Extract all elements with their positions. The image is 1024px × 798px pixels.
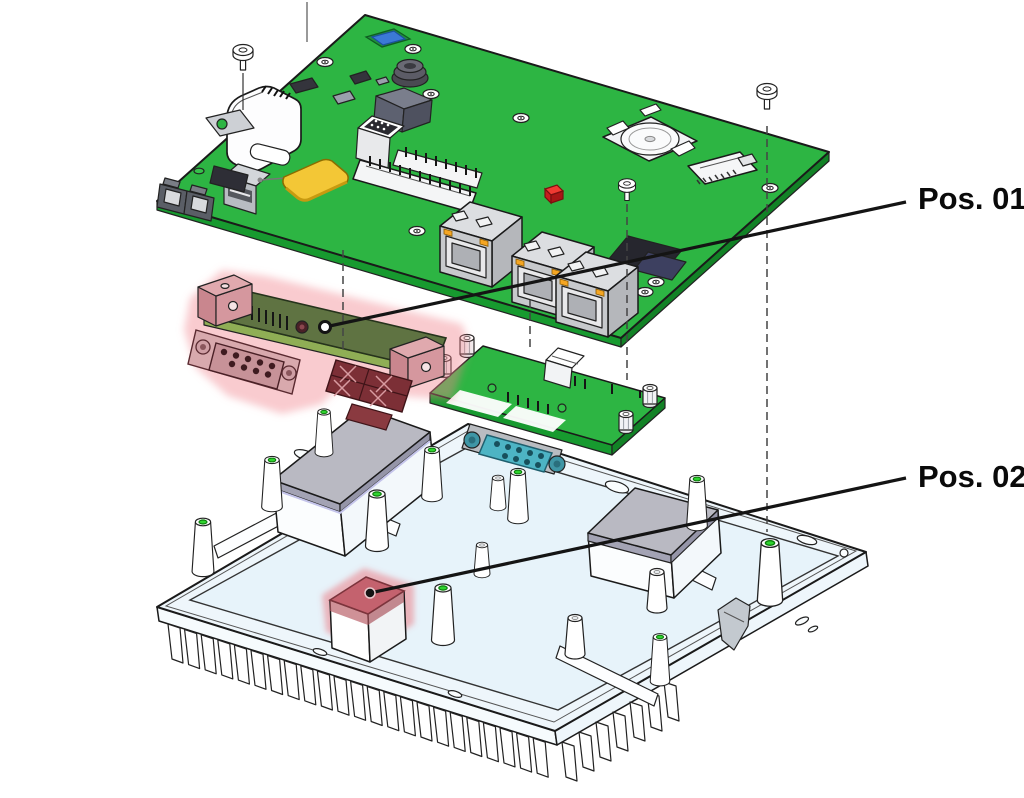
leader-dot-pos02	[365, 588, 375, 598]
leader-dot-pos01	[320, 322, 331, 333]
pos01-highlighted-board	[184, 270, 470, 430]
screw-2	[757, 84, 777, 110]
screw-1	[233, 45, 253, 71]
buzzer	[392, 60, 428, 88]
exploded-view-diagram: Pos. 01 Pos. 02	[0, 0, 1024, 798]
red-led	[545, 185, 563, 203]
callout-pos01-label: Pos. 01	[918, 181, 1024, 216]
callout-pos02-label: Pos. 02	[918, 459, 1024, 494]
